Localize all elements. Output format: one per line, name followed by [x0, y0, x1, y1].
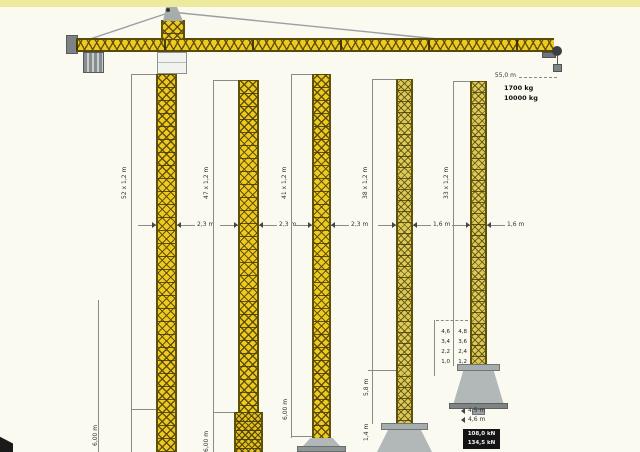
- slewing-platform: [157, 52, 187, 74]
- tower-4-height-label: 38 x 1,2 m: [362, 148, 371, 218]
- table-cell: 2,4: [454, 348, 467, 356]
- tower-1-top-tick: [131, 74, 157, 75]
- table-cell: 1,2: [454, 358, 467, 366]
- tower-2-arrow-left-icon: [259, 222, 263, 228]
- tower-2-base-label: 6,00 m: [203, 430, 212, 452]
- table-cell: 2,2: [437, 348, 450, 356]
- jib: [76, 38, 554, 52]
- tower-1-height-label: 52 x 1,2 m: [121, 148, 130, 218]
- counterweight: [83, 52, 104, 73]
- tower-3-arrow-right-icon: [308, 222, 312, 228]
- tower-1-base-label: 6,00 m: [92, 418, 101, 452]
- tower-4-dim-line: [372, 79, 373, 424]
- tower-5-arrow-right-icon: [466, 222, 470, 228]
- table-cell: 4,8: [454, 328, 467, 336]
- jib-length-leader: [519, 77, 557, 78]
- tower-4-arrow-right-icon: [392, 222, 396, 228]
- tower-3-top-tick: [291, 74, 312, 75]
- tower-1-arrow-right-icon: [152, 222, 156, 228]
- tower-2-lattice: [238, 80, 259, 412]
- tower-4-lower-base-label: 1,4 m: [363, 418, 372, 446]
- tower-4-arrow-left-icon: [413, 222, 417, 228]
- tower-5-height-label: 33 x 1,2 m: [443, 148, 452, 218]
- max-load-label: 10000 kg: [504, 94, 544, 102]
- table-cell: 1,0: [437, 358, 450, 366]
- tower-5-arrow-left-icon: [487, 222, 491, 228]
- tower-2-top-tick: [213, 80, 238, 81]
- tower-2-base-lattice: [234, 412, 263, 452]
- tower-2-dim-line: [213, 80, 214, 452]
- tower-5-base-width-label-1: 4,5 m: [468, 407, 485, 415]
- table-cell: 3,4: [437, 338, 450, 346]
- tower-3-height-label: 41 x 1,2 m: [281, 148, 290, 218]
- tower-5-bracket-line: [434, 320, 435, 376]
- hook-block: [553, 64, 562, 72]
- tower-3-arrow-left-icon: [331, 222, 335, 228]
- tower-5-top-tick: [453, 81, 470, 82]
- tower-4-top-tick: [372, 79, 396, 80]
- tower-1-width-label: 2,3 m: [197, 221, 214, 229]
- tower-1-arrow-left-icon: [177, 222, 181, 228]
- tower-5-dash-tick: [436, 320, 468, 321]
- table-cell: 4,6: [437, 328, 450, 336]
- load-badge: 108,0 kN 134,5 kN: [463, 429, 500, 449]
- load-badge-line-1: 108,0 kN: [463, 430, 500, 439]
- crane-diagram: 55,0 m 1700 kg 10000 kg 52 x 1,2 m 2,3 m…: [0, 0, 640, 452]
- tower-1-dim-line: [131, 74, 132, 452]
- tower-3-width-label: 2,3 m: [351, 221, 368, 229]
- tower-5-base-arrow-icon-1: [461, 408, 465, 414]
- tower-3-base-plate: [297, 446, 346, 452]
- apex-pulley-icon: [166, 8, 170, 12]
- tower-5-lattice: [470, 81, 487, 366]
- tip-load-label: 1700 kg: [504, 84, 544, 92]
- tower-4-upper-base-label: 5,8 m: [363, 372, 372, 402]
- tower-4-lattice: [396, 79, 413, 424]
- tower-3-base-label: 6,00 m: [282, 392, 291, 426]
- tower-1-lattice: [156, 74, 177, 452]
- load-badge-line-2: 134,5 kN: [463, 439, 500, 448]
- tower-3-low-tick: [291, 436, 312, 437]
- tower-2-arrow-right-icon: [234, 222, 238, 228]
- tower-5-base-arrow-icon-2: [461, 417, 465, 423]
- tower-2-height-label: 47 x 1,2 m: [203, 148, 212, 218]
- tower-5-width-label: 1,6 m: [507, 221, 524, 229]
- tower-5-section-table: 4,6 4,8 3,4 3,6 2,2 2,4 1,0 1,2: [437, 328, 467, 366]
- tower-5-dim-line: [453, 81, 454, 366]
- table-cell: 3,6: [454, 338, 467, 346]
- apex-lattice: [161, 20, 185, 39]
- tower-4-base-plate: [381, 423, 428, 430]
- tower-5-base-width-label-2: 4,6 m: [468, 416, 485, 424]
- jib-length-label: 55,0 m: [486, 72, 516, 80]
- tower-4-width-label: 1,6 m: [433, 221, 450, 229]
- tower-3-lattice: [312, 74, 331, 438]
- slewing-platform-line: [158, 62, 186, 63]
- tower-4-mid-tick: [368, 370, 396, 371]
- tower-3-dim-line: [291, 74, 292, 438]
- jib-tip-pulley: [552, 46, 562, 56]
